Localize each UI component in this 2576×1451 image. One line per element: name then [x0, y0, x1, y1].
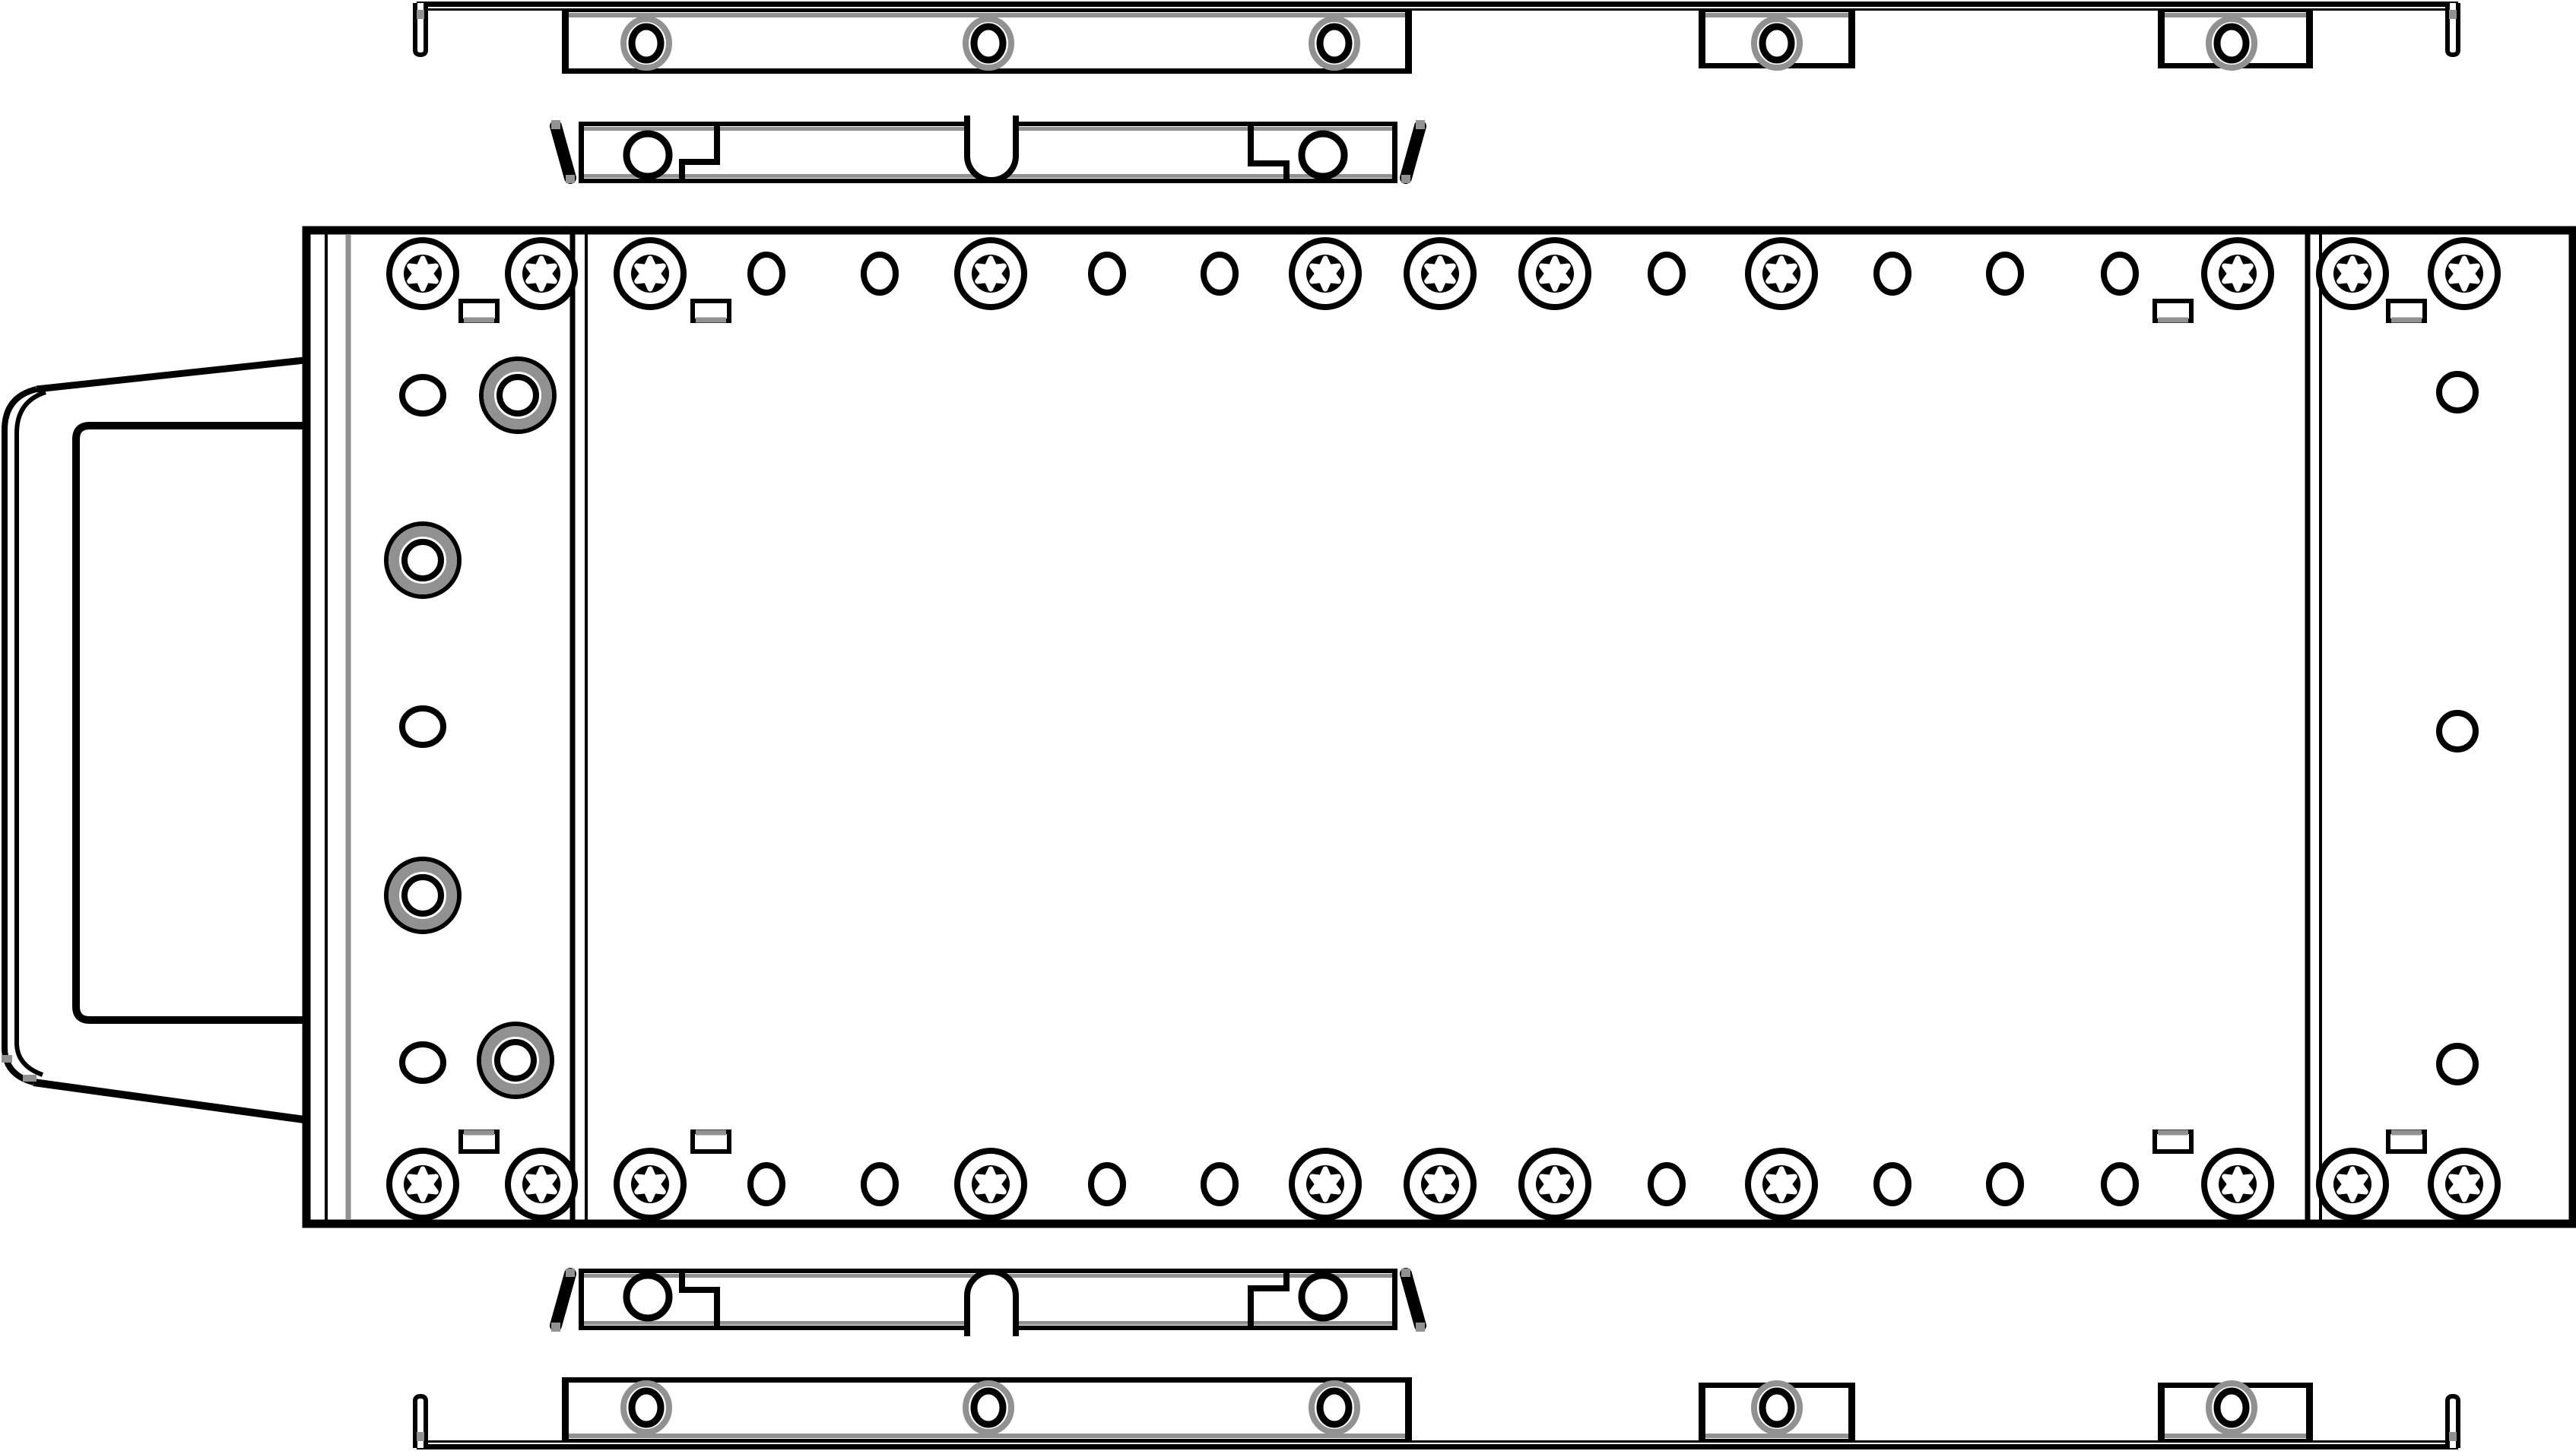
torx-screw: [957, 1151, 1024, 1218]
rail-grommet: [2209, 19, 2254, 68]
handle-gray-mark: [2, 1055, 12, 1063]
mounting-slot-tab: [461, 1132, 497, 1152]
torx-screw: [508, 1151, 575, 1218]
bracket-hole: [1302, 134, 1344, 176]
rail-grommet: [2209, 1383, 2254, 1432]
torx-screw: [1748, 1151, 1815, 1218]
slide-rail-parts: [415, 2, 2458, 74]
rail-grommet: [623, 19, 669, 68]
end-cap-hole: [402, 708, 443, 745]
rubber-grommet: [386, 524, 459, 597]
mounting-slot-tab: [461, 301, 497, 321]
torx-screw: [1292, 240, 1359, 307]
torx-screw: [1521, 240, 1588, 307]
rail-grommet: [1312, 1383, 1357, 1432]
rail-grommet: [1754, 1383, 1800, 1432]
screw-hole: [1989, 1165, 2021, 1203]
clip-gray-cap: [1401, 175, 1410, 183]
mounting-slot-tab: [693, 1132, 729, 1152]
bottom-mounting-bracket: [551, 1269, 1425, 1336]
handle-inner-edge: [17, 392, 46, 1075]
screw-hole: [1204, 1165, 1236, 1203]
clip-gray-cap: [1416, 1323, 1425, 1332]
chassis-outline: [306, 230, 2573, 1224]
clip-gray-cap: [551, 1323, 560, 1332]
rail-bar-outer-line: [417, 1444, 2458, 1449]
torx-screw: [389, 240, 456, 307]
torx-screw: [957, 240, 1024, 307]
front-handle: [2, 360, 306, 1120]
right-section-hole: [2439, 1046, 2476, 1082]
screw-hole: [750, 255, 782, 293]
screw-hole: [1651, 1165, 1683, 1203]
mounting-slot-tab: [2155, 301, 2191, 321]
handle-outer-edge: [5, 389, 36, 1082]
torx-screw: [1521, 1151, 1588, 1218]
torx-screw: [617, 1151, 684, 1218]
torx-screw: [2319, 1151, 2386, 1218]
handle-opening: [76, 426, 306, 1020]
end-cap-hole: [402, 1044, 443, 1081]
clip-gray-cap: [551, 120, 560, 129]
torx-screw: [1407, 240, 1474, 307]
torx-screw: [617, 240, 684, 307]
rail-bar-outer-line: [417, 2, 2458, 7]
screw-hole: [1651, 255, 1683, 293]
hook-gray-cap: [417, 1432, 424, 1441]
bracket-parts: [551, 1269, 1425, 1336]
bracket-u-notch: [967, 1272, 1016, 1336]
screw-hole: [2104, 1165, 2136, 1203]
end-cap-hole: [402, 377, 443, 413]
screw-hole: [2104, 255, 2136, 293]
torx-screw: [2204, 240, 2271, 307]
top-slide-rail: [415, 2, 2458, 74]
bracket-hole: [627, 1275, 669, 1318]
rail-grommet: [1754, 19, 1800, 68]
torx-screw: [389, 1151, 456, 1218]
screw-hole: [1091, 1165, 1123, 1203]
screw-hole: [750, 1165, 782, 1203]
screw-hole: [1876, 255, 1908, 293]
top-mounting-bracket: [551, 116, 1425, 183]
torx-screw: [1292, 1151, 1359, 1218]
screw-hole: [1876, 1165, 1908, 1203]
clip-gray-cap: [1416, 120, 1425, 129]
bracket-u-notch: [967, 116, 1016, 180]
rail-grommet: [966, 1383, 1011, 1432]
clip-gray-cap: [566, 1269, 575, 1277]
hook-gray-cap: [417, 10, 424, 19]
clip-gray-cap: [1401, 1269, 1410, 1277]
torx-screw: [2204, 1151, 2271, 1218]
bracket-hole: [627, 134, 669, 176]
torx-screw: [2319, 240, 2386, 307]
clip-gray-cap: [566, 175, 575, 183]
rail-grommet: [966, 19, 1011, 68]
torx-screw: [1748, 240, 1815, 307]
technical-drawing-canvas: [0, 0, 2576, 1451]
screw-hole: [1989, 255, 2021, 293]
hook-gray-cap: [2449, 1432, 2457, 1441]
screw-hole: [864, 1165, 896, 1203]
rail-grommet: [623, 1383, 669, 1432]
rail-grommet: [1312, 19, 1357, 68]
bracket-parts: [551, 116, 1425, 183]
handle-gray-mark: [23, 1075, 36, 1082]
mounting-slot-tab: [693, 301, 729, 321]
slide-rail-parts: [415, 1377, 2458, 1449]
screw-hole: [1204, 255, 1236, 293]
screw-hole: [1091, 255, 1123, 293]
bracket-hole: [1302, 1275, 1344, 1318]
mounting-slot-tab: [2155, 1132, 2191, 1152]
torx-screw: [2431, 1151, 2498, 1218]
rubber-grommet: [386, 859, 459, 932]
right-section-hole: [2439, 374, 2476, 410]
mounting-slot-tab: [2388, 301, 2425, 321]
rubber-grommet: [479, 1024, 552, 1097]
hook-gray-cap: [2449, 10, 2457, 19]
torx-screw: [2431, 240, 2498, 307]
bottom-slide-rail: [415, 1377, 2458, 1449]
mounting-slot-tab: [2388, 1132, 2425, 1152]
chassis-base-plate: [306, 230, 2573, 1224]
chassis-rail-assembly-drawing: [0, 0, 2576, 1451]
rubber-grommet: [481, 359, 554, 432]
screw-hole: [864, 255, 896, 293]
torx-screw: [508, 240, 575, 307]
torx-screw: [1407, 1151, 1474, 1218]
right-section-hole: [2439, 713, 2476, 749]
